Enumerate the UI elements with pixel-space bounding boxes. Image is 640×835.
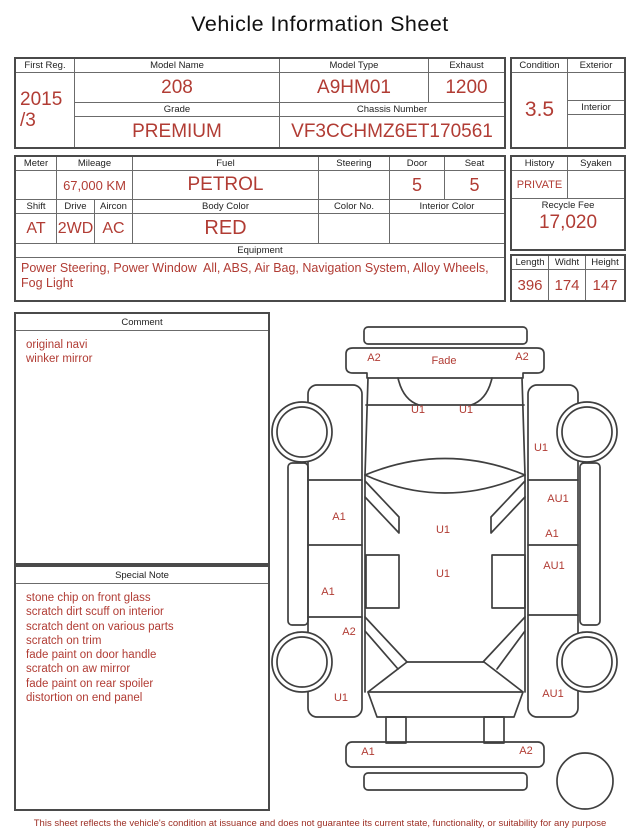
grade-label: Grade: [75, 103, 280, 117]
hood-outline: [365, 378, 525, 475]
special-note-box: Special Note stone chip on front glasssc…: [14, 565, 270, 811]
windshield: [365, 459, 525, 494]
syaken-value: [568, 171, 624, 199]
color-no-label: Color No.: [319, 200, 390, 214]
damage-code-label: A2: [367, 352, 380, 364]
trunk-outline: [368, 692, 523, 717]
damage-code-label: U1: [334, 692, 348, 704]
drive-label: Drive: [57, 200, 95, 214]
recycle-fee-label: Recycle Fee: [512, 199, 624, 212]
history-value: PRIVATE: [512, 171, 568, 199]
car-damage-diagram: A2FadeA2U1U1U1A1AU1U1A1AU1U1A1A2U1AU1A1A…: [270, 315, 640, 815]
equipment-label: Equipment: [16, 244, 504, 258]
condition-value: 3.5: [512, 73, 568, 147]
color-no-value: [319, 214, 390, 244]
door-label: Door: [390, 157, 445, 171]
interior-color-value: [390, 214, 504, 244]
width-label: Widht: [549, 256, 586, 270]
model-type-value: A9HM01: [280, 73, 429, 103]
mileage-value: 67,000 KM: [57, 171, 133, 200]
front-bumper-top-bar: [364, 327, 527, 344]
grade-value: PREMIUM: [75, 117, 280, 147]
damage-code-label: U1: [436, 524, 450, 536]
model-name-value: 208: [75, 73, 280, 103]
spare-wheel: [557, 753, 613, 809]
note-line: fade paint on door handle: [26, 648, 258, 662]
body-color-label: Body Color: [133, 200, 319, 214]
damage-code-label: AU1: [547, 493, 568, 505]
fuel-value: PETROL: [133, 171, 319, 200]
steering-value: [319, 171, 390, 200]
exhaust-value: 1200: [429, 73, 504, 103]
meter-label: Meter: [16, 157, 57, 171]
page-title: Vehicle Information Sheet: [0, 12, 640, 37]
exterior-label: Exterior: [568, 59, 624, 73]
damage-code-label: U1: [459, 404, 473, 416]
exhaust-label: Exhaust: [429, 59, 504, 73]
damage-code-label: AU1: [542, 688, 563, 700]
height-value: 147: [586, 270, 624, 300]
aircon-value: AC: [95, 214, 133, 244]
left-rocker-panel: [288, 463, 308, 625]
shift-value: AT: [16, 214, 57, 244]
interior-label: Interior: [568, 101, 624, 115]
comment-box: Comment original naviwinker mirror: [14, 312, 270, 565]
note-line: scratch dirt scuff on interior: [26, 605, 258, 619]
damage-code-label: A2: [519, 745, 532, 757]
length-value: 396: [512, 270, 549, 300]
steering-label: Steering: [319, 157, 390, 171]
interior-value: [568, 115, 624, 147]
note-line: fade paint on rear spoiler: [26, 677, 258, 691]
aircon-label: Aircon: [95, 200, 133, 214]
condition-table: Condition Exterior 3.5 Interior: [510, 57, 626, 149]
note-line: stone chip on front glass: [26, 591, 258, 605]
history-table: History Syaken PRIVATE Recycle Fee 17,02…: [510, 155, 626, 251]
dimensions-table: Length Widht Height 396 174 147: [510, 254, 626, 302]
fuel-label: Fuel: [133, 157, 319, 171]
note-line: scratch dent on various parts: [26, 620, 258, 634]
mileage-label: Mileage: [57, 157, 133, 171]
note-line: scratch on aw mirror: [26, 662, 258, 676]
damage-code-label: A1: [321, 586, 334, 598]
body-color-value: RED: [133, 214, 319, 244]
first-reg-label: First Reg.: [16, 59, 75, 73]
syaken-label: Syaken: [568, 157, 624, 171]
note-line: original navi: [26, 338, 258, 352]
meter-value: [16, 171, 57, 200]
right-rocker-panel: [580, 463, 600, 625]
height-label: Height: [586, 256, 624, 270]
shift-label: Shift: [16, 200, 57, 214]
equipment-value: Power Steering, Power Window All, ABS, A…: [16, 258, 504, 300]
length-label: Length: [512, 256, 549, 270]
special-note-body: stone chip on front glassscratch dirt sc…: [16, 584, 268, 712]
rear-bumper: [346, 742, 544, 767]
chassis-number-label: Chassis Number: [280, 103, 504, 117]
note-line: scratch on trim: [26, 634, 258, 648]
damage-code-labels: A2FadeA2U1U1U1A1AU1U1A1AU1U1A1A2U1AU1A1A…: [321, 351, 568, 758]
model-type-label: Model Type: [280, 59, 429, 73]
first-reg-value: 2015/3: [16, 73, 75, 147]
comment-body: original naviwinker mirror: [16, 331, 268, 374]
damage-code-label: U1: [534, 442, 548, 454]
history-label: History: [512, 157, 568, 171]
special-note-label: Special Note: [16, 567, 268, 584]
damage-code-label: AU1: [543, 560, 564, 572]
recycle-fee-value: 17,020: [512, 212, 624, 249]
damage-code-label: U1: [436, 568, 450, 580]
damage-code-label: A1: [545, 528, 558, 540]
damage-code-label: A1: [332, 511, 345, 523]
condition-label: Condition: [512, 59, 568, 73]
note-line: winker mirror: [26, 352, 258, 366]
width-value: 174: [549, 270, 586, 300]
rear-bumper-bottom-bar: [364, 773, 527, 790]
drive-value: 2WD: [57, 214, 95, 244]
damage-code-label: Fade: [431, 355, 456, 367]
door-value: 5: [390, 171, 445, 200]
vehicle-information-sheet: Vehicle Information Sheet First Reg. Mod…: [0, 0, 640, 835]
damage-code-label: U1: [411, 404, 425, 416]
damage-code-label: A2: [342, 626, 355, 638]
chassis-number-value: VF3CCHMZ6ET170561: [280, 117, 504, 147]
exterior-value: [568, 73, 624, 101]
damage-code-label: A2: [515, 351, 528, 363]
disclaimer-text: This sheet reflects the vehicle's condit…: [0, 818, 640, 829]
damage-code-label: A1: [361, 746, 374, 758]
comment-label: Comment: [16, 314, 268, 331]
note-line: distortion on end panel: [26, 691, 258, 705]
seat-label: Seat: [445, 157, 504, 171]
model-name-label: Model Name: [75, 59, 280, 73]
info-table: First Reg. Model Name Model Type Exhaust…: [14, 57, 506, 149]
seat-value: 5: [445, 171, 504, 200]
interior-color-label: Interior Color: [390, 200, 504, 214]
details-table: Meter Mileage Fuel Steering Door Seat 67…: [14, 155, 506, 302]
